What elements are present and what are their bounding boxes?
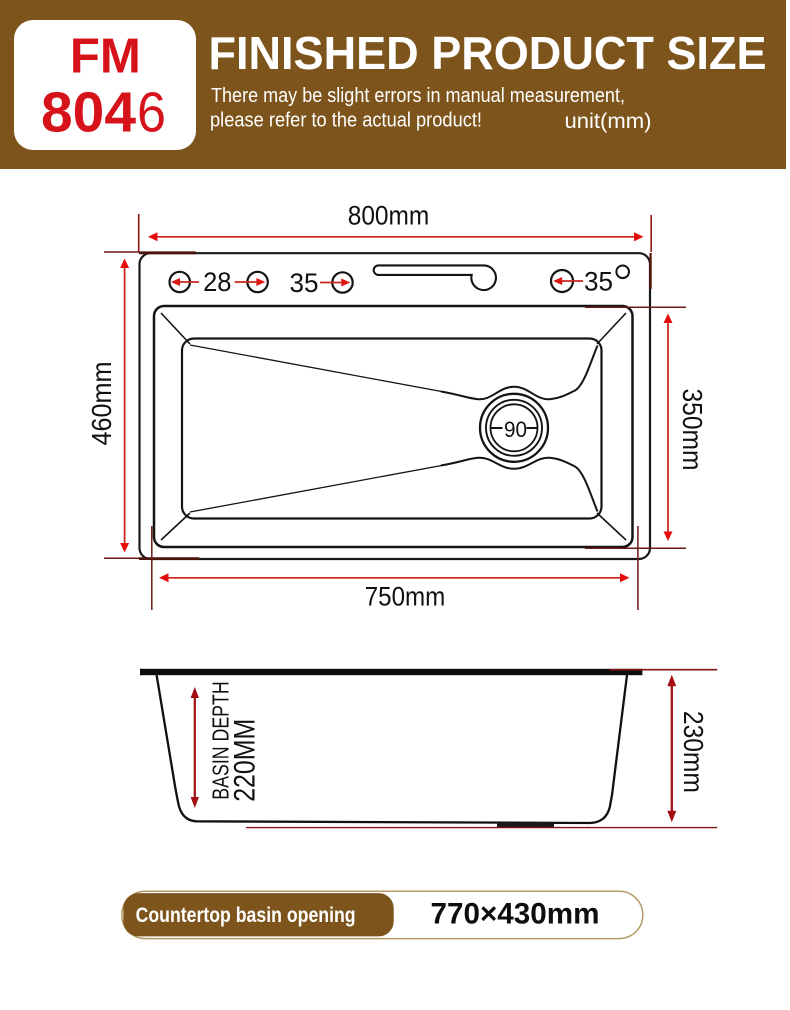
svg-text:230mm: 230mm <box>678 711 709 793</box>
svg-text:6: 6 <box>137 80 166 144</box>
svg-text:800mm: 800mm <box>348 201 430 231</box>
svg-text:35: 35 <box>290 268 319 298</box>
svg-text:28: 28 <box>203 267 231 297</box>
svg-text:90: 90 <box>504 417 527 442</box>
svg-text:FINISHED PRODUCT SIZE: FINISHED PRODUCT SIZE <box>209 27 767 79</box>
svg-text:220MM: 220MM <box>229 719 262 802</box>
svg-text:350mm: 350mm <box>677 389 708 471</box>
svg-text:460mm: 460mm <box>86 362 117 446</box>
svg-text:unit(mm): unit(mm) <box>565 110 652 133</box>
svg-text:Countertop basin opening: Countertop basin opening <box>136 904 356 927</box>
svg-text:There may be slight errors in: There may be slight errors in manual mea… <box>211 85 625 107</box>
svg-text:770×430mm: 770×430mm <box>431 898 600 931</box>
svg-text:750mm: 750mm <box>365 582 446 612</box>
svg-text:804: 804 <box>41 80 136 144</box>
svg-text:35: 35 <box>584 267 613 297</box>
svg-text:please refer to the actual pro: please refer to the actual product! <box>210 109 482 131</box>
svg-text:FM: FM <box>70 30 141 84</box>
